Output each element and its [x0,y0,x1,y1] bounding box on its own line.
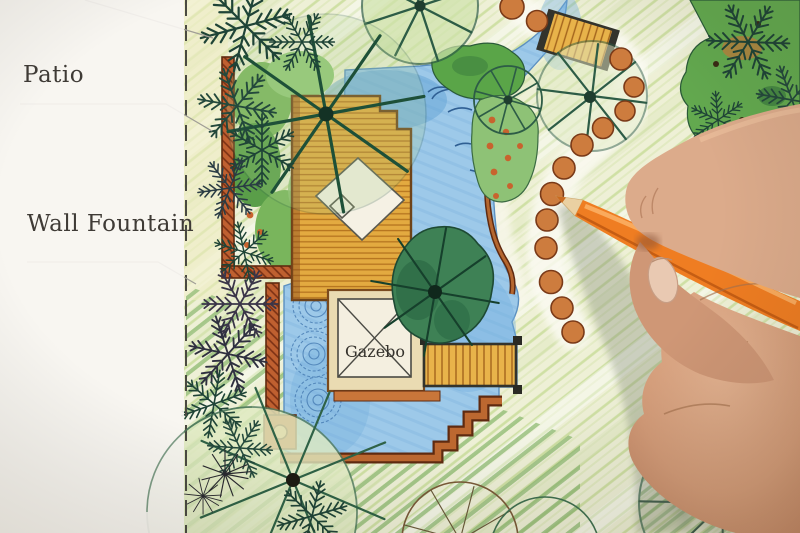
patio-label: Patio [23,62,84,88]
wall-fountain-label: Wall Fountain [27,211,194,237]
landscape-plan-drawing [0,0,800,533]
photo-vignette [0,0,800,533]
gazebo-label: Gazebo [336,342,414,361]
photo-landscape-plan: Patio Wall Fountain Gazebo [0,0,800,533]
